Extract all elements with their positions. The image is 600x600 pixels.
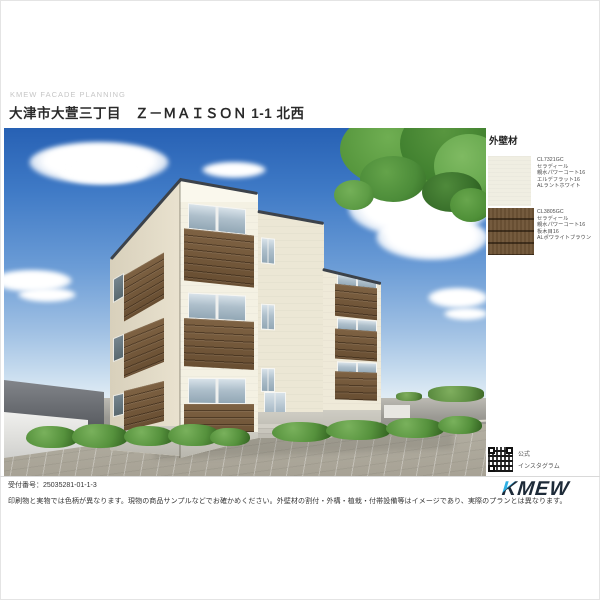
building-front-face — [180, 180, 258, 460]
spec-line: CL3805GC — [537, 209, 599, 216]
window — [188, 378, 246, 405]
qr-finder — [488, 465, 495, 472]
bush — [272, 422, 332, 442]
qr-finder — [506, 447, 513, 454]
bush — [438, 416, 482, 434]
far-hedge — [428, 386, 484, 402]
bush — [210, 428, 250, 446]
stair-window — [261, 237, 275, 264]
spec-line: ALポワライトブラウン — [537, 235, 599, 242]
balcony-panel — [335, 329, 377, 362]
instagram-label-name: インスタグラム — [518, 461, 560, 470]
bush — [326, 420, 390, 440]
bush — [26, 426, 78, 448]
bush — [72, 424, 128, 448]
instagram-qr-code — [488, 447, 513, 472]
receipt-number: 受付番号：25035281-01-1-3 — [8, 480, 97, 490]
qr-finder — [488, 447, 495, 454]
window — [113, 334, 124, 362]
instagram-label-official: 公式 — [518, 449, 530, 458]
spec-line: ALラントホワイト — [537, 183, 599, 190]
site-wall — [384, 405, 410, 418]
spec-line: CL7321GC — [537, 157, 599, 164]
material-swatch-brown — [488, 208, 534, 255]
kmew-logo-rest: MEW — [516, 478, 570, 500]
disclaimer-text: 印刷物と実物では色柄が異なります。現物の商品サンプルなどでお確かめください。外壁… — [8, 496, 567, 506]
building-right-wing — [323, 270, 381, 442]
window — [113, 273, 124, 303]
building-middle-face — [258, 212, 324, 438]
balcony-panel — [184, 228, 254, 287]
building-rendering — [4, 128, 486, 476]
stair-window — [261, 368, 275, 392]
footer-divider — [0, 476, 600, 477]
spec-line: 親水パワーコート16 — [537, 222, 599, 229]
balcony-panel — [124, 381, 164, 431]
page-title: 大津市大萱三丁目 Ｚ－ＭＡＩＳＯＮ 1-1 北西 — [9, 102, 305, 122]
balcony-panel — [184, 318, 254, 370]
bush — [124, 426, 174, 446]
material-swatch-white — [488, 156, 531, 206]
tree-foliage — [334, 180, 374, 210]
cloud — [428, 288, 486, 308]
tree-foliage — [450, 188, 486, 222]
watermark-text: KMEW FACADE PLANNING — [10, 90, 126, 99]
materials-heading: 外壁材 — [489, 133, 518, 147]
stair-window — [261, 304, 275, 331]
cloud — [59, 160, 149, 184]
cloud — [376, 216, 486, 260]
balcony-panel — [335, 284, 377, 320]
spec-line: 親水パワーコート16 — [537, 170, 599, 177]
far-hedge — [396, 392, 422, 401]
material-spec-brown: CL3805GC セラディール 親水パワーコート16 板木目16 ALポワライト… — [537, 209, 599, 242]
balcony-panel — [124, 252, 164, 321]
window — [113, 393, 124, 418]
cloud — [444, 308, 486, 320]
window — [188, 292, 246, 321]
corner-edge — [179, 180, 181, 458]
balcony-panel — [124, 318, 164, 378]
cloud — [18, 288, 76, 302]
material-spec-white: CL7321GC セラディール 親水パワーコート16 エルデフラット16 ALラ… — [537, 157, 599, 190]
balcony-panel — [335, 371, 377, 400]
kmew-logo: KMEW — [501, 478, 571, 501]
bush — [386, 418, 444, 438]
cloud — [202, 162, 266, 178]
